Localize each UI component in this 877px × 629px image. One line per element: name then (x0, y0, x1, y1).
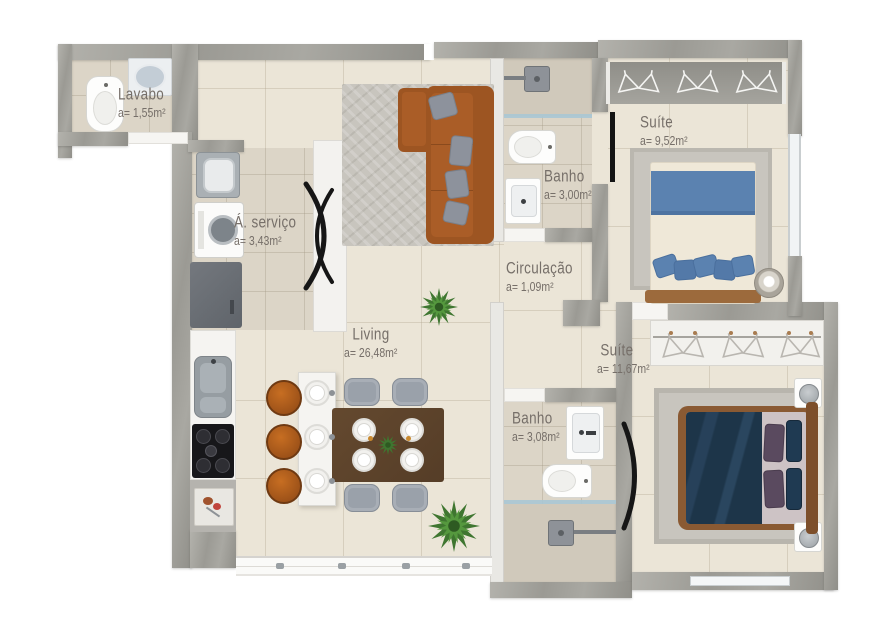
burner (215, 429, 230, 444)
room-label-suite1: Suíte a= 9,52m² (640, 114, 688, 148)
sofa-pillow (442, 200, 470, 227)
glass-cup (329, 390, 335, 396)
room-name: Suíte (640, 114, 688, 133)
glass-cup (329, 478, 335, 484)
room-label-banho2: Banho a= 3,08m² (512, 410, 560, 444)
bed-headboard (645, 290, 761, 303)
suite1-window (788, 134, 801, 256)
banho2-door-threshold (504, 388, 545, 402)
toilet-seat (548, 470, 576, 492)
suite1-closet (606, 62, 786, 104)
burner-center (205, 445, 217, 457)
bar-stool (266, 468, 302, 504)
burner (215, 458, 230, 473)
lavabo-door-threshold (128, 132, 188, 144)
room-area: a= 3,00m² (544, 188, 592, 203)
dinner-plate (400, 448, 424, 472)
wall-top-left (58, 44, 430, 60)
faucet-handle (586, 431, 596, 435)
wall-circulacao-corner (563, 300, 600, 326)
nightstand-lamp (799, 384, 819, 404)
dining-chair (344, 484, 380, 512)
wall-lavabo-right (172, 44, 198, 140)
wall-servico-top (188, 140, 244, 152)
shower-nozzle (558, 530, 564, 536)
kitchen-sink (194, 356, 232, 418)
burner (196, 429, 211, 444)
bed-blanket (651, 171, 755, 215)
wall-top-right (598, 40, 800, 58)
wall-top-middle (434, 42, 598, 58)
wall-lavabo-bottom (58, 132, 128, 146)
bedside-lamp (754, 268, 784, 298)
wall-kitchen-corner (190, 530, 236, 568)
shower-head (524, 66, 550, 92)
entry-door-swing-icon (296, 178, 348, 294)
suite2-bottom-window (690, 576, 790, 586)
window-handle (338, 563, 346, 569)
suite1-bed (650, 162, 756, 304)
toilet-seat (514, 136, 542, 158)
room-name: Circulação (506, 260, 573, 279)
room-area: a= 9,52m² (640, 134, 688, 149)
shower-arm (574, 530, 616, 534)
chaise-cushion (402, 92, 426, 146)
dining-chair (392, 484, 428, 512)
dining-chair (344, 378, 380, 406)
window-rail (236, 566, 492, 567)
window-handle (276, 563, 284, 569)
table-centerpiece-plant (378, 435, 398, 455)
clothes-hangers-icon (610, 62, 782, 102)
dining-chair (392, 378, 428, 406)
place-setting (304, 424, 330, 450)
banho1-vanity (505, 178, 541, 224)
burner (196, 458, 211, 473)
potted-plant (420, 288, 458, 326)
room-area: a= 1,09m² (506, 280, 573, 295)
place-setting (304, 468, 330, 494)
room-name: Banho (544, 168, 592, 187)
wall-left-outer (172, 132, 192, 568)
room-area: a= 3,43m² (234, 234, 296, 249)
bed-blanket-navy (686, 412, 762, 524)
toilet-flush-button (548, 145, 552, 149)
wall-suite1-bottom (668, 302, 832, 320)
room-area: a= 3,08m² (512, 430, 560, 445)
room-name: Banho (512, 410, 560, 429)
room-name: Living (352, 326, 397, 345)
wall-suite1-right-lower (788, 256, 802, 316)
toilet-seat (93, 91, 117, 125)
dinner-plate (400, 418, 424, 442)
bed-pillow-navy (786, 420, 802, 462)
floor-plan: Lavabo a= 1,55m² Á. serviço a= 3,43m² Ba… (0, 0, 877, 629)
bar-stool (266, 424, 302, 460)
sink-bowl-2 (200, 397, 226, 413)
laundry-tank-sink (196, 152, 240, 198)
refrigerator (190, 262, 242, 328)
washer-controls (198, 211, 204, 249)
bar-stool (266, 380, 302, 416)
wall-suite1-left-lower (592, 184, 608, 302)
sofa-pillow (444, 169, 470, 200)
cutting-board (194, 488, 234, 526)
candle (406, 436, 411, 441)
room-label-servico: Á. serviço a= 3,43m² (234, 214, 296, 248)
wall-banho1-bottom (545, 228, 592, 242)
dinner-plate (352, 448, 376, 472)
room-area: a= 26,48m² (344, 346, 397, 361)
room-area: a= 11,67m² (597, 362, 650, 377)
room-name: Á. serviço (234, 214, 296, 233)
bed-headboard (806, 402, 818, 534)
clothes-hangers-icon (651, 321, 823, 365)
suite2-closet (650, 320, 824, 366)
place-setting (304, 380, 330, 406)
sofa-pillow (448, 135, 473, 167)
wall-suite2-right (824, 302, 838, 590)
bed-pillow-navy (786, 468, 802, 510)
banho2-toilet (542, 464, 592, 498)
window-handle (402, 563, 410, 569)
shower-glass-partition (504, 500, 616, 504)
banho1-toilet (508, 130, 556, 164)
room-label-circulacao: Circulação a= 1,09m² (506, 260, 573, 294)
suite2-door-threshold (632, 302, 668, 320)
toilet-flush-button (104, 83, 108, 87)
room-label-suite2: Suíte a= 11,67m² (597, 342, 650, 376)
room-name: Suíte (600, 342, 649, 361)
wall-banho2-top (545, 388, 616, 402)
wall-banho2-left (490, 302, 504, 586)
wall-banho2-bottom (490, 582, 632, 598)
room-area: a= 1,55m² (118, 106, 166, 121)
faucet (579, 430, 584, 435)
faucet (211, 359, 216, 364)
living-balcony-windows (236, 556, 492, 576)
fridge-handle (230, 300, 234, 314)
shower-arm (504, 76, 526, 80)
food-item (203, 497, 213, 505)
suite1-door-leaf (610, 112, 615, 182)
suite2-door-swing-icon (618, 420, 646, 532)
candle (368, 436, 373, 441)
bed-pillow (730, 254, 755, 278)
wall-suite1-right-upper (788, 40, 802, 136)
glass-cup (329, 434, 335, 440)
room-name: Lavabo (118, 86, 166, 105)
shower-head (548, 520, 574, 546)
wall-gap (424, 44, 434, 60)
toilet-flush-button (584, 479, 588, 483)
banho2-vanity (566, 406, 604, 460)
room-label-lavabo: Lavabo a= 1,55m² (118, 86, 166, 120)
banho1-door-threshold (504, 228, 545, 242)
sink-bowl (200, 363, 226, 393)
cooktop (192, 424, 234, 478)
suite1-door-floor (592, 112, 608, 184)
room-label-living: Living a= 26,48m² (344, 326, 397, 360)
faucet (521, 199, 526, 204)
food-item (213, 503, 221, 510)
bed-pillow-purple (763, 424, 785, 463)
window-handle (462, 563, 470, 569)
shower-nozzle (534, 76, 540, 82)
room-label-banho1: Banho a= 3,00m² (544, 168, 592, 202)
tank-basin (203, 158, 235, 193)
shower-glass-partition (504, 114, 592, 118)
bed-pillow-purple (763, 470, 785, 509)
potted-plant (428, 500, 480, 552)
